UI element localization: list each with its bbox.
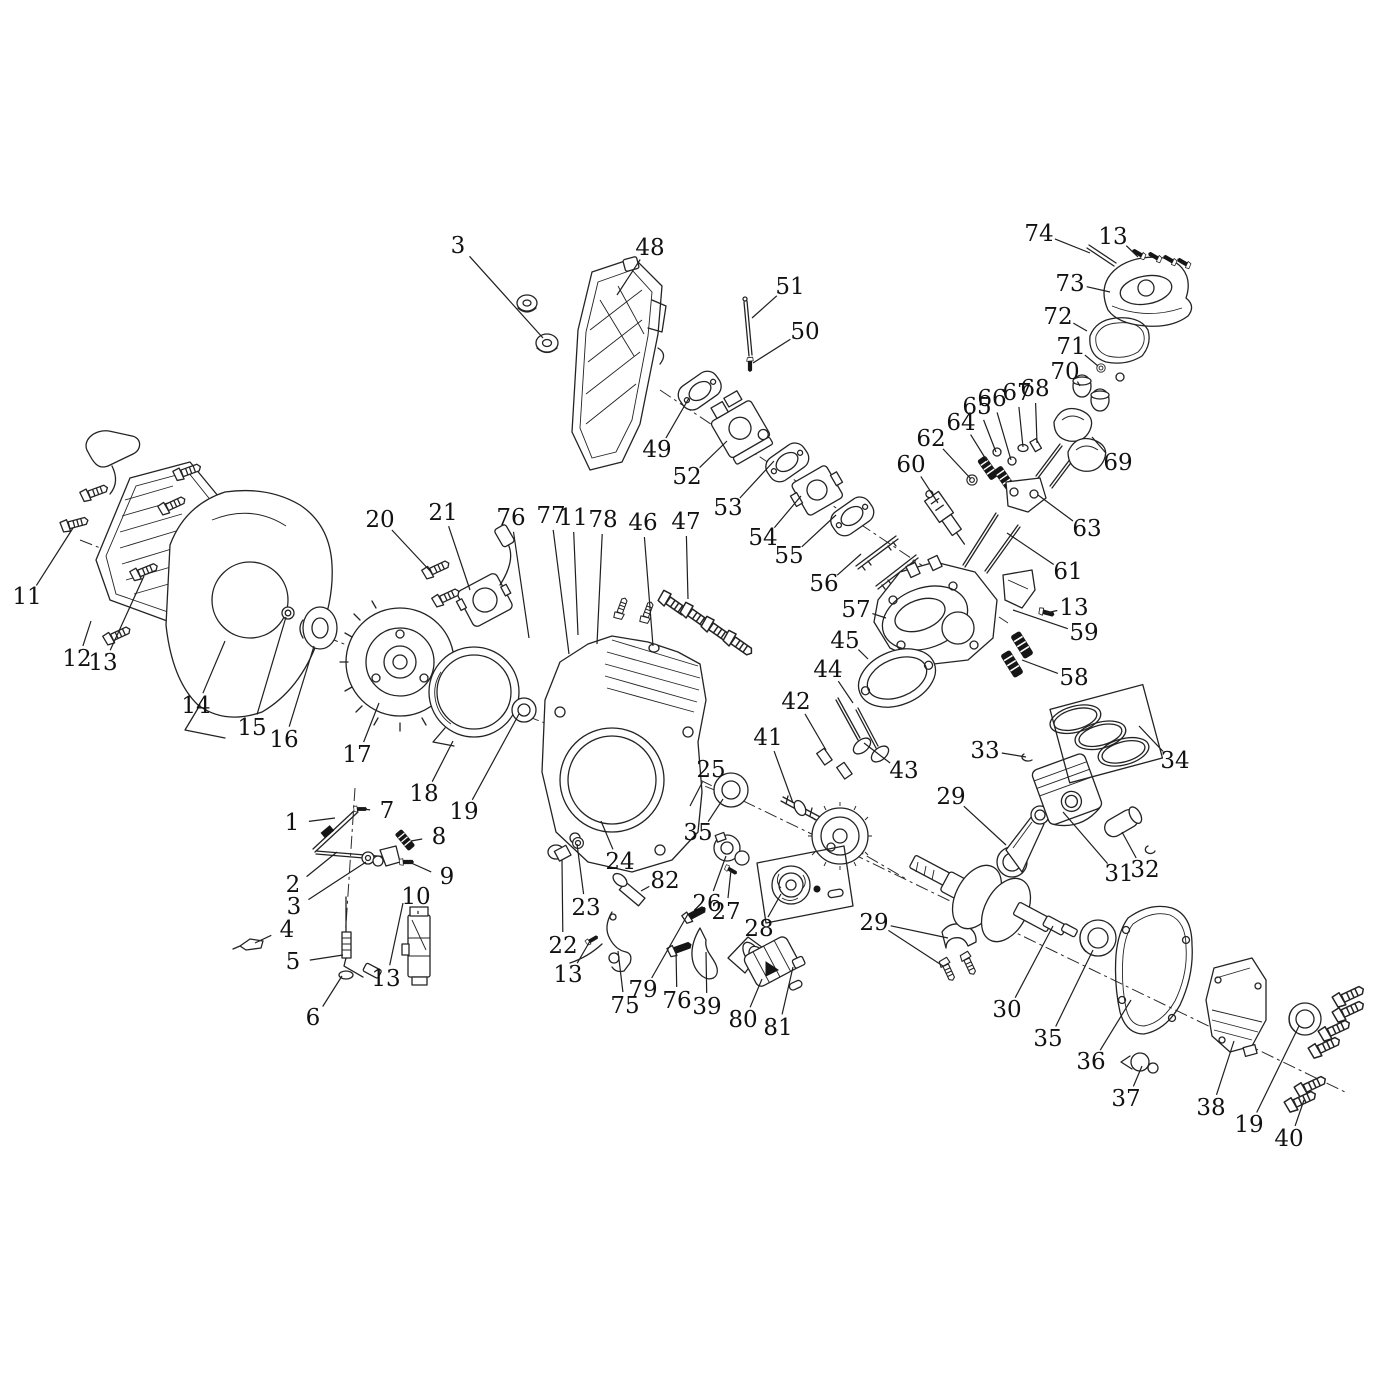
leader-line-9 xyxy=(409,862,431,872)
callout-13: 13 xyxy=(1098,224,1138,257)
leader-line-6 xyxy=(323,976,342,1007)
part-number-82: 82 xyxy=(650,868,679,894)
part-number-38: 38 xyxy=(1196,1095,1225,1121)
part-number-58: 58 xyxy=(1059,665,1088,691)
callout-52: 52 xyxy=(672,441,727,490)
part-number-36: 36 xyxy=(1076,1049,1105,1075)
crankcase-cover-drawing xyxy=(1206,958,1266,1056)
cover-bolts-drawing xyxy=(1284,983,1366,1114)
leader-line-29 xyxy=(891,926,948,938)
callout-29: 29 xyxy=(936,784,1006,845)
throttle-linkage-drawing xyxy=(313,806,415,866)
starter-pulley-cup-drawing xyxy=(429,647,519,746)
part-number-13: 13 xyxy=(1059,595,1088,621)
leader-line-58 xyxy=(1022,660,1058,673)
part-number-11: 11 xyxy=(558,505,587,531)
leader-line-53 xyxy=(740,461,774,498)
part-number-19: 19 xyxy=(1234,1112,1263,1138)
leader-line-68 xyxy=(1036,403,1037,443)
leader-line-52 xyxy=(700,441,727,468)
leader-line-74 xyxy=(1055,239,1090,253)
part-number-35: 35 xyxy=(683,820,712,846)
part-number-71: 71 xyxy=(1056,334,1085,360)
part-number-28: 28 xyxy=(744,916,773,942)
leader-line-47 xyxy=(686,536,688,599)
part-number-5: 5 xyxy=(286,949,301,975)
part-number-76: 76 xyxy=(662,988,691,1014)
engine-exploded-diagram: 3485150741373727170495253545556576260646… xyxy=(0,0,1377,1377)
callout-11: 11 xyxy=(558,505,587,635)
rocker-plate-drawing xyxy=(1006,478,1046,512)
camshaft-drawing xyxy=(781,796,872,870)
part-number-79: 79 xyxy=(628,977,657,1003)
leader-line-50 xyxy=(753,339,790,363)
part-number-81: 81 xyxy=(763,1015,792,1041)
callout-2: 2 xyxy=(286,852,337,898)
part-number-27: 27 xyxy=(711,899,740,925)
part-number-80: 80 xyxy=(728,1007,757,1033)
leader-line-26 xyxy=(713,856,726,891)
leader-line-38 xyxy=(1217,1041,1235,1095)
part-number-68: 68 xyxy=(1020,376,1049,402)
callout-17: 17 xyxy=(342,703,379,768)
callout-38: 38 xyxy=(1196,1041,1234,1121)
leader-line-82 xyxy=(641,886,649,891)
main-bearing-right-drawing xyxy=(1080,920,1116,956)
oil-sensor-drawing xyxy=(1121,1053,1158,1073)
part-number-20: 20 xyxy=(365,507,394,533)
callout-58: 58 xyxy=(1022,660,1089,691)
governor-assembly-drawing xyxy=(714,832,749,876)
callout-63: 63 xyxy=(1038,495,1102,542)
callout-44: 44 xyxy=(813,657,853,703)
part-number-48: 48 xyxy=(635,235,664,261)
part-number-33: 33 xyxy=(970,738,999,764)
callout-13: 13 xyxy=(371,903,403,992)
part-number-42: 42 xyxy=(781,689,810,715)
part-number-44: 44 xyxy=(813,657,842,683)
callout-12: 12 xyxy=(62,621,91,672)
callout-50: 50 xyxy=(753,319,820,363)
leader-line-46 xyxy=(644,537,653,646)
valves-drawing xyxy=(817,698,892,779)
rocker-arms-drawing xyxy=(1054,409,1106,472)
callout-3: 3 xyxy=(451,233,543,338)
part-number-59: 59 xyxy=(1069,620,1098,646)
leader-line-2 xyxy=(307,852,337,877)
part-number-8: 8 xyxy=(432,824,447,850)
leader-line-45 xyxy=(858,650,868,659)
callout-70: 70 xyxy=(1050,359,1080,386)
part-number-76: 76 xyxy=(496,505,525,531)
part-number-52: 52 xyxy=(672,464,701,490)
part-number-39: 39 xyxy=(692,994,721,1020)
leader-line-61 xyxy=(1007,533,1054,565)
callout-55: 55 xyxy=(774,515,836,569)
baffle-plate-drawing xyxy=(1003,570,1035,608)
part-number-31: 31 xyxy=(1104,861,1133,887)
part-number-53: 53 xyxy=(713,495,742,521)
leader-line-44 xyxy=(838,681,853,703)
part-number-16: 16 xyxy=(269,727,298,753)
leader-line-55 xyxy=(802,515,836,547)
leader-line-51 xyxy=(752,296,777,318)
leader-line-67 xyxy=(1019,407,1023,447)
part-number-23: 23 xyxy=(571,895,600,921)
part-number-14: 14 xyxy=(181,693,210,719)
part-number-18: 18 xyxy=(409,781,438,807)
part-number-60: 60 xyxy=(896,452,925,478)
part-number-56: 56 xyxy=(809,571,838,597)
part-number-37: 37 xyxy=(1111,1086,1140,1112)
part-number-72: 72 xyxy=(1043,304,1072,330)
leader-line-13 xyxy=(577,941,590,963)
callout-74: 74 xyxy=(1024,221,1090,253)
part-number-61: 61 xyxy=(1053,559,1082,585)
part-number-6: 6 xyxy=(306,1005,321,1031)
part-number-51: 51 xyxy=(775,274,804,300)
cover-nuts-drawing xyxy=(517,295,558,353)
part-number-9: 9 xyxy=(440,864,455,890)
oil-seal-drawing xyxy=(512,698,536,722)
part-number-22: 22 xyxy=(548,933,577,959)
leader-line-76 xyxy=(514,532,530,638)
part-number-78: 78 xyxy=(588,507,617,533)
part-number-34: 34 xyxy=(1160,748,1189,774)
callout-8: 8 xyxy=(411,824,446,850)
part-number-49: 49 xyxy=(642,437,671,463)
callout-51: 51 xyxy=(752,274,805,318)
callout-20: 20 xyxy=(365,507,432,573)
leader-line-63 xyxy=(1038,495,1073,521)
leader-line-42 xyxy=(805,714,826,750)
callout-29: 29 xyxy=(859,910,948,966)
case-gasket-drawing xyxy=(1116,906,1193,1034)
callout-76: 76 xyxy=(662,949,691,1014)
leader-line-35 xyxy=(708,799,723,822)
part-number-57: 57 xyxy=(841,597,870,623)
leader-line-30 xyxy=(1015,926,1053,998)
part-number-50: 50 xyxy=(790,319,819,345)
leader-line-27 xyxy=(728,870,731,898)
part-number-13: 13 xyxy=(1098,224,1127,250)
leader-line-5 xyxy=(310,955,343,960)
part-number-21: 21 xyxy=(428,500,457,526)
part-number-41: 41 xyxy=(753,725,782,751)
callout-45: 45 xyxy=(830,628,868,659)
callout-18: 18 xyxy=(409,741,453,807)
connecting-rod-drawing xyxy=(997,806,1049,877)
leader-line-28 xyxy=(768,894,781,917)
leader-line-76 xyxy=(676,949,677,987)
part-number-70: 70 xyxy=(1050,359,1079,385)
choke-rod-drawing xyxy=(743,297,753,372)
part-number-3: 3 xyxy=(451,233,466,259)
leader-line-18 xyxy=(432,741,453,782)
part-number-30: 30 xyxy=(992,997,1021,1023)
part-number-13: 13 xyxy=(553,962,582,988)
part-number-62: 62 xyxy=(916,426,945,452)
part-number-17: 17 xyxy=(342,742,371,768)
spark-plug-drawing xyxy=(921,486,972,549)
callout-41: 41 xyxy=(753,725,793,803)
callout-13: 13 xyxy=(1046,595,1089,621)
part-number-35: 35 xyxy=(1033,1026,1062,1052)
leader-line-54 xyxy=(774,496,801,528)
part-number-32: 32 xyxy=(1130,857,1159,883)
head-springs-drawing xyxy=(1001,631,1033,677)
callout-80: 80 xyxy=(728,979,762,1033)
callout-46: 46 xyxy=(628,510,657,646)
callout-10: 10 xyxy=(401,884,430,914)
part-number-11: 11 xyxy=(12,584,41,610)
leader-line-49 xyxy=(666,398,689,438)
part-number-43: 43 xyxy=(889,758,918,784)
part-number-63: 63 xyxy=(1072,516,1101,542)
leader-line-20 xyxy=(392,530,432,573)
flange-nut-drawing xyxy=(282,607,294,619)
callout-7: 7 xyxy=(362,798,394,824)
callout-5: 5 xyxy=(286,949,343,975)
part-number-7: 7 xyxy=(380,798,395,824)
callout-53: 53 xyxy=(713,461,774,521)
part-number-55: 55 xyxy=(774,543,803,569)
leader-line-72 xyxy=(1073,323,1087,331)
callout-68: 68 xyxy=(1020,376,1049,443)
part-number-25: 25 xyxy=(696,757,725,783)
part-number-13: 13 xyxy=(371,966,400,992)
leader-line-21 xyxy=(449,526,470,590)
part-number-74: 74 xyxy=(1024,221,1053,247)
leader-line-39 xyxy=(706,952,707,993)
solenoid-drawing xyxy=(402,907,430,985)
callout-37: 37 xyxy=(1111,1066,1142,1112)
part-number-69: 69 xyxy=(1103,450,1132,476)
callout-21: 21 xyxy=(428,500,470,590)
rod-cap-drawing xyxy=(938,924,978,982)
part-number-73: 73 xyxy=(1055,271,1084,297)
callout-42: 42 xyxy=(781,689,826,750)
callout-6: 6 xyxy=(306,976,342,1031)
leader-line-77 xyxy=(553,530,569,654)
callout-47: 47 xyxy=(671,509,700,599)
leader-line-8 xyxy=(411,839,422,841)
callout-82: 82 xyxy=(641,868,680,894)
part-number-10: 10 xyxy=(401,884,430,910)
callout-76: 76 xyxy=(496,505,529,638)
callout-72: 72 xyxy=(1043,304,1087,331)
part-number-40: 40 xyxy=(1274,1126,1303,1152)
leader-line-29 xyxy=(964,806,1006,845)
part-number-4: 4 xyxy=(280,917,295,943)
part-number-15: 15 xyxy=(237,715,266,741)
starter-motor-drawing xyxy=(728,935,806,991)
leader-line-32 xyxy=(1122,832,1136,858)
leader-line-11 xyxy=(36,528,73,585)
leader-line-64 xyxy=(971,435,987,461)
part-number-12: 12 xyxy=(62,646,91,672)
part-number-54: 54 xyxy=(748,525,777,551)
part-number-46: 46 xyxy=(628,510,657,536)
part-number-19: 19 xyxy=(449,799,478,825)
leader-line-62 xyxy=(943,449,971,479)
callout-33: 33 xyxy=(970,738,1026,764)
callout-11: 11 xyxy=(12,528,73,610)
leader-line-78 xyxy=(597,534,602,644)
push-rods-drawing xyxy=(963,513,1020,573)
leader-line-65 xyxy=(984,420,996,452)
callout-73: 73 xyxy=(1055,271,1110,297)
part-number-29: 29 xyxy=(936,784,965,810)
leader-line-12 xyxy=(83,621,91,646)
leader-line-13 xyxy=(390,903,403,965)
callout-43: 43 xyxy=(864,743,919,784)
ignition-coil-drawing xyxy=(421,524,517,630)
callout-34: 34 xyxy=(1139,726,1190,774)
leader-line-17 xyxy=(364,703,379,742)
leader-line-22 xyxy=(562,860,563,932)
part-number-24: 24 xyxy=(605,849,634,875)
callout-4: 4 xyxy=(255,917,294,943)
callout-78: 78 xyxy=(588,507,617,644)
part-number-29: 29 xyxy=(859,910,888,936)
exploded-parts-diagram-page: 3485150741373727170495253545556576260646… xyxy=(0,0,1377,1377)
breather-parts-drawing xyxy=(1073,364,1124,411)
callout-56: 56 xyxy=(809,554,861,597)
leader-line-11 xyxy=(574,532,578,635)
part-number-47: 47 xyxy=(671,509,700,535)
choke-lever-drawing xyxy=(233,939,263,950)
cover-oil-seal-drawing xyxy=(1289,1003,1321,1035)
leader-line-1 xyxy=(309,818,335,821)
cylinder-head-drawing xyxy=(873,555,997,665)
part-number-13: 13 xyxy=(88,650,117,676)
callout-49: 49 xyxy=(642,398,689,463)
part-number-1: 1 xyxy=(285,810,300,836)
part-number-45: 45 xyxy=(830,628,859,654)
leader-line-41 xyxy=(774,751,793,803)
dipstick-drawing xyxy=(611,871,645,906)
valve-cover-drawing xyxy=(1104,257,1192,326)
